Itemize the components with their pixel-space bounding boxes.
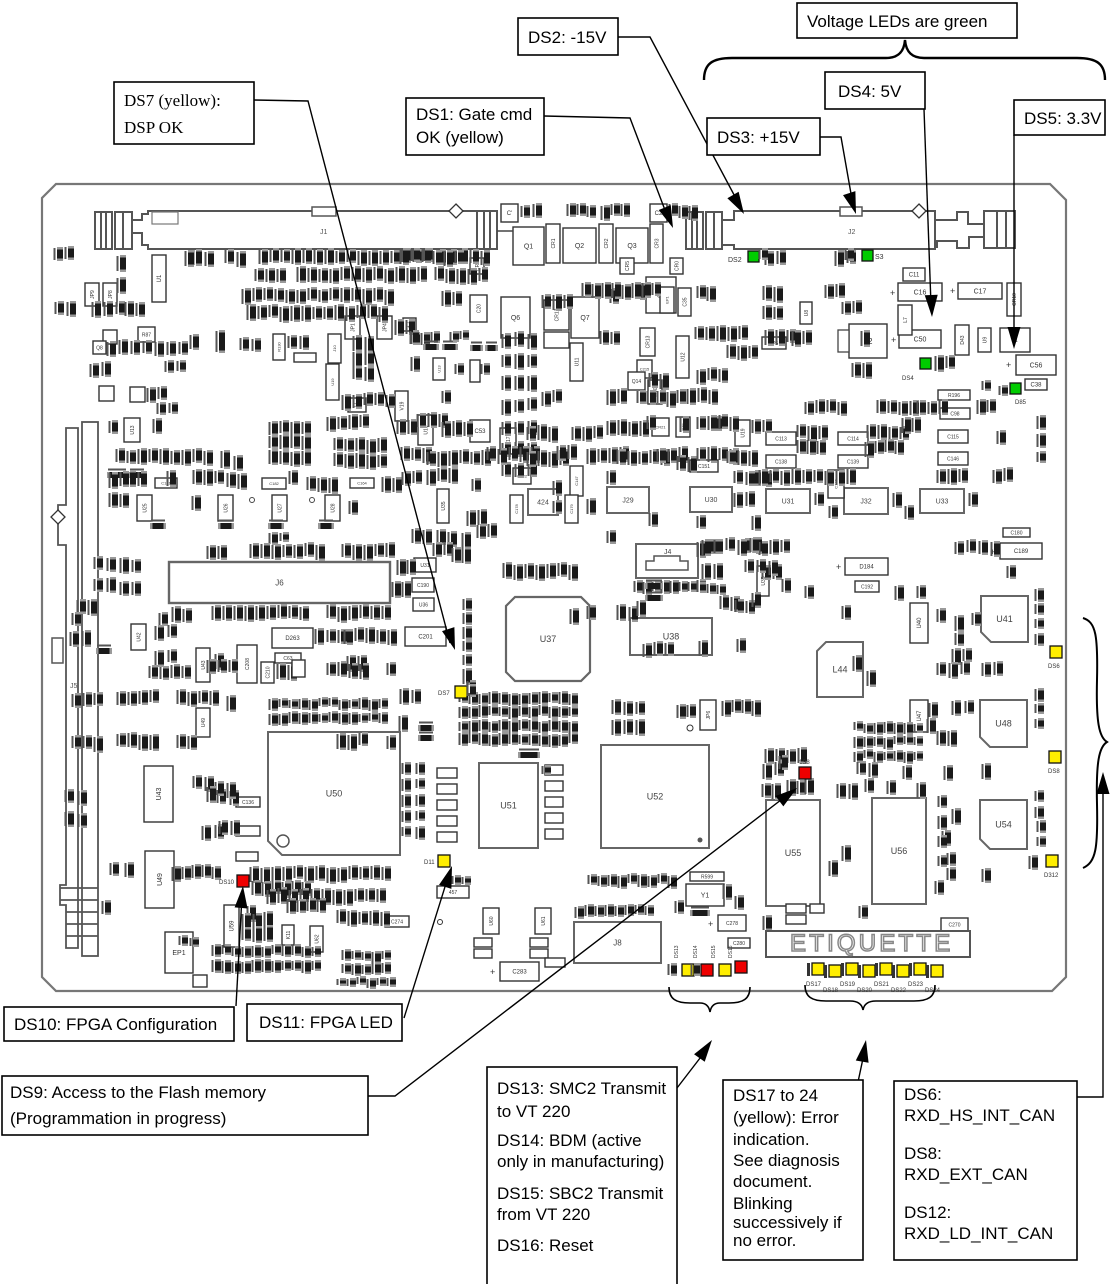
svg-text:C280: C280 (733, 941, 745, 947)
svg-text:K11: K11 (286, 931, 292, 940)
svg-text:DS15: SBC2 Transmit: DS15: SBC2 Transmit (497, 1184, 664, 1203)
svg-text:C215: C215 (640, 366, 650, 371)
svg-text:U1: U1 (157, 274, 163, 282)
svg-text:Q8: Q8 (96, 345, 103, 351)
svg-text:C201: C201 (418, 635, 433, 641)
svg-text:EP1: EP1 (172, 950, 185, 957)
svg-text:C139: C139 (847, 459, 859, 465)
svg-text:C146: C146 (947, 456, 959, 462)
svg-text:U40: U40 (917, 617, 923, 629)
svg-text:DS2: -15V: DS2: -15V (528, 28, 607, 47)
svg-text:U13: U13 (130, 425, 136, 434)
svg-text:Blinking: Blinking (733, 1194, 793, 1213)
svg-text:+: + (890, 288, 895, 298)
svg-text:C114: C114 (847, 436, 859, 442)
svg-text:J4: J4 (664, 549, 672, 556)
svg-text:U41: U41 (996, 614, 1013, 624)
svg-text:424: 424 (537, 499, 549, 506)
svg-text:C': C' (507, 211, 512, 217)
svg-text:C50: C50 (914, 336, 927, 343)
svg-text:U59: U59 (230, 920, 236, 932)
svg-text:C35: C35 (682, 297, 688, 306)
svg-text:U60: U60 (489, 916, 495, 925)
svg-text:CR21: CR21 (655, 424, 666, 429)
svg-text:U30: U30 (705, 497, 718, 504)
svg-text:U49: U49 (157, 873, 164, 886)
svg-text:C38: C38 (1030, 383, 1042, 389)
svg-text:U38: U38 (663, 632, 680, 642)
svg-text:C138: C138 (775, 459, 787, 465)
svg-text:U26: U26 (223, 503, 229, 512)
svg-text:C190: C190 (417, 583, 429, 589)
svg-text:Voltage LEDs are green: Voltage LEDs are green (807, 12, 988, 31)
svg-text:(yellow): Error: (yellow): Error (733, 1108, 839, 1127)
svg-text:U8: U8 (804, 310, 810, 317)
svg-text:+: + (950, 286, 955, 296)
svg-text:R87: R87 (142, 332, 151, 338)
svg-text:457: 457 (449, 890, 458, 896)
svg-text:DS14: DS14 (693, 945, 699, 958)
svg-text:document.: document. (733, 1172, 812, 1191)
svg-text:U52: U52 (647, 792, 664, 802)
svg-text:DS16: Reset: DS16: Reset (497, 1236, 594, 1255)
svg-text:U51: U51 (500, 801, 517, 811)
svg-text:U35: U35 (441, 501, 447, 510)
svg-text:J6: J6 (275, 578, 284, 587)
svg-text:U62: U62 (314, 934, 320, 943)
svg-text:V19: V19 (399, 401, 405, 410)
svg-text:D263: D263 (285, 636, 300, 642)
svg-text:U27: U27 (277, 503, 283, 512)
svg-text:JP8: JP8 (108, 290, 114, 299)
svg-text:no error.: no error. (733, 1231, 796, 1250)
svg-text:DS21: DS21 (874, 982, 890, 988)
svg-text:U19: U19 (330, 378, 335, 386)
svg-text:U11: U11 (574, 357, 580, 366)
svg-text:DS18: DS18 (823, 988, 839, 994)
svg-text:DS15: DS15 (711, 945, 717, 958)
svg-text:DS17: DS17 (806, 982, 822, 988)
svg-text:DS8: DS8 (1048, 769, 1060, 775)
svg-text:JP6: JP6 (706, 710, 712, 719)
svg-text:U31: U31 (782, 498, 795, 505)
svg-text:C11: C11 (909, 273, 920, 279)
svg-text:C192: C192 (861, 584, 873, 590)
svg-text:JP1: JP1 (350, 323, 356, 332)
svg-text:EP1: EP1 (664, 295, 669, 303)
svg-text:DS1: Gate cmd: DS1: Gate cmd (416, 105, 532, 124)
svg-text:CR1: CR1 (551, 238, 557, 248)
svg-text:DS9: Access to the Flash memor: DS9: Access to the Flash memory (10, 1083, 267, 1102)
svg-text:R130: R130 (276, 341, 281, 351)
svg-text:J32: J32 (860, 498, 871, 505)
svg-text:C113: C113 (775, 436, 787, 442)
svg-text:DS14: BDM (active: DS14: BDM (active (497, 1131, 642, 1150)
svg-text:+: + (836, 562, 841, 572)
svg-text:DS20: DS20 (857, 988, 873, 994)
svg-text:DS17 to 24: DS17 to 24 (733, 1086, 818, 1105)
svg-text:(Programmation in progress): (Programmation in progress) (10, 1109, 226, 1128)
svg-text:DS6: DS6 (1048, 664, 1060, 670)
svg-text:J8: J8 (613, 938, 622, 947)
svg-text:C115: C115 (947, 434, 959, 440)
svg-text:C182: C182 (269, 481, 279, 486)
svg-text:DS11: FPGA LED: DS11: FPGA LED (259, 1013, 393, 1032)
svg-text:DS5: 3.3V: DS5: 3.3V (1024, 109, 1102, 128)
svg-text:Q6: Q6 (511, 315, 520, 322)
svg-text:U56: U56 (891, 846, 908, 856)
svg-text:U19: U19 (740, 428, 746, 437)
svg-text:DS2: DS2 (728, 257, 742, 264)
svg-text:C278: C278 (726, 921, 738, 927)
svg-text:C147: C147 (574, 475, 579, 485)
svg-text:DS16: DS16 (728, 945, 734, 958)
svg-text:indication.: indication. (733, 1130, 810, 1149)
svg-text:C17: C17 (974, 288, 987, 295)
svg-text:U43: U43 (156, 787, 163, 800)
svg-text:J10: J10 (332, 345, 337, 352)
svg-text:R196: R196 (948, 393, 960, 399)
svg-text:OK (yellow): OK (yellow) (416, 128, 504, 147)
svg-text:CR13: CR13 (645, 335, 651, 348)
svg-text:JP9: JP9 (90, 290, 96, 299)
svg-text:C16: C16 (914, 289, 927, 296)
svg-text:DS3: +15V: DS3: +15V (717, 128, 800, 147)
svg-text:CR2: CR2 (604, 238, 610, 248)
svg-text:DS22: DS22 (891, 988, 907, 994)
svg-text:C98: C98 (950, 411, 959, 417)
svg-text:C136: C136 (242, 800, 254, 806)
svg-text:See diagnosis: See diagnosis (733, 1151, 840, 1170)
svg-text:C180: C180 (1011, 530, 1023, 536)
svg-text:RXD_HS_INT_CAN: RXD_HS_INT_CAN (904, 1106, 1055, 1125)
svg-text:successively if: successively if (733, 1213, 842, 1232)
svg-text:U33: U33 (936, 498, 949, 505)
svg-text:DS4: DS4 (902, 376, 914, 382)
svg-text:D11: D11 (424, 860, 435, 866)
svg-text:D43: D43 (960, 335, 966, 344)
svg-text:+: + (708, 919, 713, 929)
svg-text:U50: U50 (326, 789, 343, 799)
svg-text:JP4: JP4 (382, 323, 388, 332)
svg-text:U31: U31 (420, 563, 429, 569)
svg-text:to VT 220: to VT 220 (497, 1102, 570, 1121)
svg-text:DS6:: DS6: (904, 1085, 942, 1104)
svg-text:R599: R599 (701, 874, 713, 880)
svg-text:C20: C20 (476, 304, 482, 313)
svg-text:D184: D184 (859, 565, 874, 571)
svg-text:RXD_EXT_CAN: RXD_EXT_CAN (904, 1165, 1028, 1184)
svg-text:U42: U42 (136, 632, 142, 641)
svg-text:DS10: DS10 (219, 880, 235, 886)
svg-text:J1: J1 (320, 229, 328, 236)
svg-text:DS10: FPGA Configuration: DS10: FPGA Configuration (14, 1015, 217, 1034)
svg-text:C189: C189 (1014, 549, 1029, 555)
svg-text:C274: C274 (391, 919, 403, 925)
svg-text:C53: C53 (474, 429, 486, 435)
svg-text:U12: U12 (680, 352, 686, 361)
svg-text:C210: C210 (265, 666, 271, 678)
svg-text:J2: J2 (848, 229, 856, 236)
svg-text:U28: U28 (330, 503, 336, 512)
svg-text:U61: U61 (541, 916, 547, 925)
svg-text:C151: C151 (698, 464, 710, 470)
svg-text:DS12:: DS12: (904, 1203, 951, 1222)
svg-text:DS23: DS23 (908, 982, 924, 988)
svg-text:DS13: SMC2 Transmit: DS13: SMC2 Transmit (497, 1079, 666, 1098)
svg-text:ETIQUETTE: ETIQUETTE (790, 930, 953, 957)
svg-text:D312: D312 (1044, 873, 1059, 879)
svg-text:CR5: CR5 (625, 261, 631, 271)
svg-text:DS19: DS19 (840, 982, 856, 988)
svg-text:U13: U13 (436, 365, 441, 373)
svg-text:from VT 220: from VT 220 (497, 1205, 590, 1224)
svg-text:C164: C164 (357, 480, 367, 485)
svg-text:U49: U49 (201, 718, 207, 727)
svg-text:U25: U25 (142, 503, 148, 512)
svg-text:CR3: CR3 (654, 238, 660, 248)
svg-text:U48: U48 (995, 719, 1012, 729)
svg-text:Q3: Q3 (627, 243, 636, 250)
svg-text:C208: C208 (245, 658, 251, 670)
svg-text:U47: U47 (917, 710, 923, 722)
svg-text:DS7 (yellow):: DS7 (yellow): (124, 91, 221, 110)
svg-text:Y1: Y1 (701, 892, 710, 899)
svg-text:Q1: Q1 (524, 243, 533, 250)
svg-text:+: + (891, 335, 896, 345)
svg-text:S3: S3 (875, 254, 884, 261)
svg-text:+: + (1006, 360, 1011, 370)
svg-text:U9: U9 (982, 337, 988, 344)
svg-text:Q7: Q7 (580, 315, 589, 322)
svg-text:U55: U55 (785, 848, 802, 858)
svg-text:CR10: CR10 (1012, 293, 1018, 306)
svg-text:C56: C56 (1030, 362, 1043, 369)
svg-text:U36: U36 (419, 602, 428, 608)
svg-text:L44: L44 (832, 665, 847, 675)
svg-text:C178: C178 (514, 503, 519, 513)
svg-text:DS8:: DS8: (904, 1144, 942, 1163)
svg-text:DS7: DS7 (438, 691, 450, 697)
svg-text:only in manufacturing): only in manufacturing) (497, 1152, 664, 1171)
svg-text:U43: U43 (201, 660, 207, 669)
svg-text:U37: U37 (540, 634, 557, 644)
svg-text:+: + (490, 967, 495, 977)
svg-text:J29: J29 (622, 497, 633, 504)
svg-text:J5: J5 (70, 683, 78, 690)
svg-text:1S8: 1S8 (799, 760, 810, 766)
svg-text:DSP OK: DSP OK (124, 118, 184, 137)
svg-text:L7: L7 (903, 317, 909, 323)
svg-text:DS13: DS13 (674, 945, 680, 958)
svg-text:D85: D85 (1015, 400, 1027, 406)
svg-text:Q14: Q14 (632, 379, 642, 385)
svg-text:U54: U54 (995, 820, 1012, 830)
svg-text:C270: C270 (949, 922, 961, 928)
svg-text:DS4: 5V: DS4: 5V (838, 82, 902, 101)
svg-text:C283: C283 (512, 970, 527, 976)
svg-text:Q2: Q2 (575, 243, 584, 250)
svg-text:RXD_LD_INT_CAN: RXD_LD_INT_CAN (904, 1224, 1053, 1243)
svg-text:CR0: CR0 (674, 261, 680, 271)
svg-text:C179: C179 (569, 503, 574, 513)
